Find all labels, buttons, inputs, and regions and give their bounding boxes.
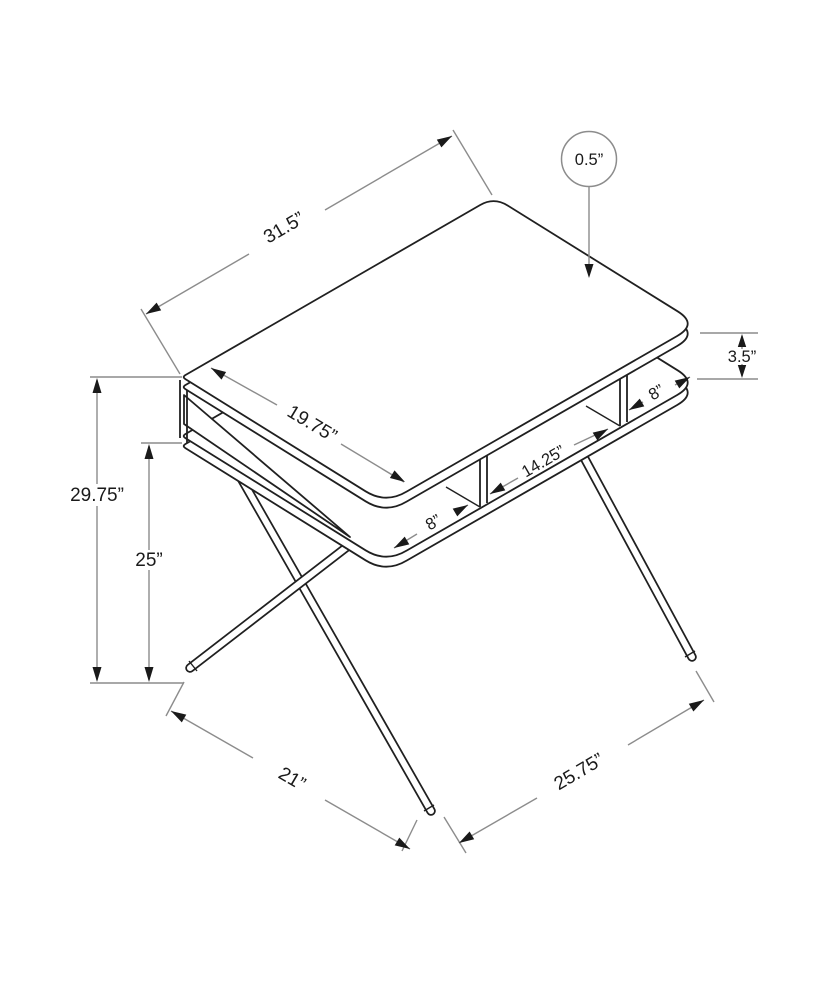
dimension-shelf-height-label: 25” [135, 550, 162, 571]
dimension-shelf-height: 25” [135, 443, 182, 682]
arrowhead [437, 136, 452, 147]
leg-right-face [580, 450, 692, 657]
arrowhead [93, 378, 102, 393]
arrowhead [146, 303, 161, 314]
arrowhead [738, 334, 746, 347]
dimension-foot-spread-front-label: 25.75” [551, 750, 608, 795]
dimension-top-thickness-label: 0.5” [575, 151, 603, 169]
dimension-cubby-height: 3.5” [697, 333, 758, 379]
arrowhead [145, 667, 154, 682]
arrowhead [171, 711, 186, 722]
dimension-top-length-label: 31.5” [260, 208, 308, 248]
dimension-overall-height-label: 29.75” [70, 485, 124, 506]
arrowhead [459, 832, 474, 844]
dimension-foot-spread-side-label: 21” [275, 763, 309, 795]
dimension-cubby-height-label: 3.5” [728, 348, 756, 366]
leg-left-rear-face [190, 543, 352, 668]
arrowhead [145, 444, 154, 459]
dimension-overall-height: 29.75” [70, 377, 184, 683]
arrowhead [738, 365, 746, 378]
diagram-canvas: 31.5” 0.5” 19.75” 8” 14.25” 8” [0, 0, 824, 1000]
desk-dimension-diagram: 31.5” 0.5” 19.75” 8” 14.25” 8” [0, 0, 824, 1000]
dimension-foot-spread-front: 25.75” [444, 671, 714, 853]
arrowhead [689, 700, 704, 712]
arrowhead [93, 667, 102, 682]
dimension-foot-spread-side: 21” [166, 682, 417, 851]
